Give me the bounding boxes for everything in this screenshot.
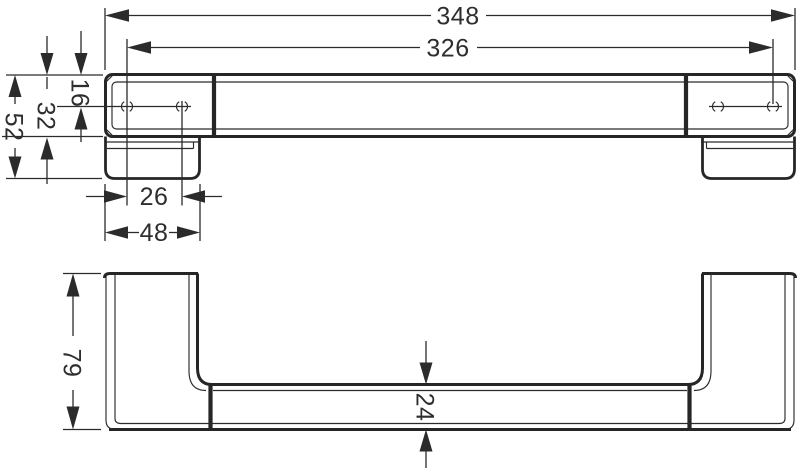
dim-rail-depth: 24 [411, 341, 439, 468]
right-foot [703, 137, 795, 179]
dim-label-base-width: 48 [140, 219, 169, 247]
dim-hole-span: 326 [127, 35, 773, 206]
left-block-outer-side [106, 274, 116, 430]
left-foot [106, 137, 200, 179]
dim-label-end-height: 52 [0, 113, 28, 142]
left-foot-step [106, 142, 199, 149]
dim-body-height: 32 [32, 36, 60, 184]
dim-label-rail-depth: 24 [411, 393, 439, 422]
right-block-top-edge [702, 274, 796, 279]
dim-end-height: 52 [0, 75, 28, 179]
dim-label-hole-offset: 16 [66, 79, 94, 108]
bar-outline [106, 75, 795, 137]
dim-label-overall-depth: 79 [58, 349, 86, 378]
dim-hole-offset: 16 [66, 31, 94, 142]
right-block-inner-side [779, 274, 785, 424]
corner-chamfer-lines [107, 76, 794, 136]
dim-label-hole-span: 326 [426, 35, 469, 63]
drawing-canvas: 348 326 52 32 [0, 0, 800, 472]
dim-label-body-height: 32 [32, 102, 60, 131]
plan-view: 79 24 [58, 274, 796, 469]
front-view: 348 326 52 32 [0, 3, 795, 248]
right-block-inner-edge [688, 274, 703, 385]
right-block-outer-side [785, 274, 795, 430]
left-block-top-edge [105, 274, 199, 279]
technical-drawing: 348 326 52 32 [0, 0, 800, 472]
left-block-inner-side [115, 274, 121, 424]
dim-overall-depth: 79 [58, 274, 102, 430]
right-foot-step [701, 142, 794, 149]
dim-label-hole-pitch: 26 [140, 183, 169, 211]
left-block-inner-edge [198, 274, 213, 385]
dim-label-overall-width: 348 [436, 3, 479, 31]
